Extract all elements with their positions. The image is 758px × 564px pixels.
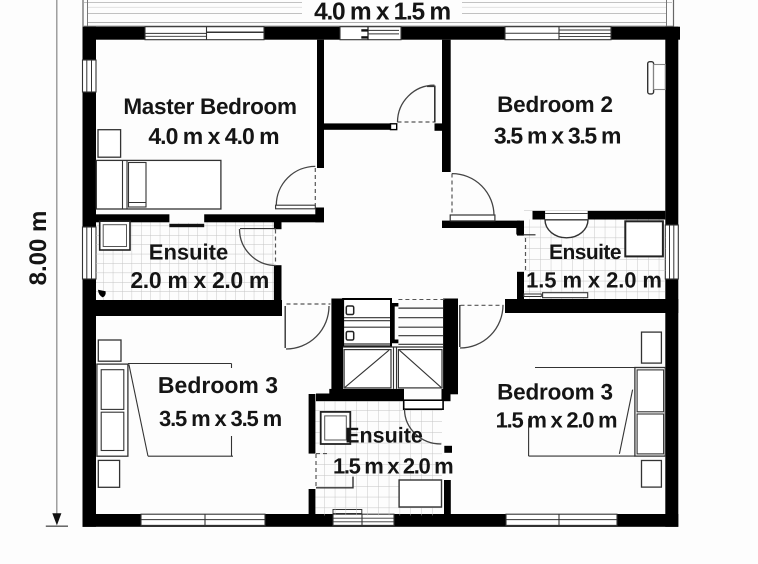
svg-text:3.5 m x 3.5 m: 3.5 m x 3.5 m [159,406,282,431]
svg-text:3.5 m x 3.5 m: 3.5 m x 3.5 m [494,123,621,149]
svg-text:4.0 m x 4.0 m: 4.0 m x 4.0 m [148,123,279,149]
svg-text:4.0 m x 1.5 m: 4.0 m x 1.5 m [314,0,450,26]
svg-text:Bedroom 2: Bedroom 2 [497,92,613,117]
svg-text:Bedroom 3: Bedroom 3 [158,372,278,398]
svg-text:8.00 m: 8.00 m [25,211,52,286]
svg-text:2.0 m x 2.0 m: 2.0 m x 2.0 m [130,267,269,293]
svg-text:Bedroom 3: Bedroom 3 [497,380,613,405]
svg-text:Ensuite: Ensuite [549,241,621,264]
svg-text:Ensuite: Ensuite [345,424,423,448]
svg-text:Master Bedroom: Master Bedroom [123,94,296,119]
svg-text:1.5 m x 2.0 m: 1.5 m x 2.0 m [496,408,617,433]
svg-text:1.5 m x 2.0 m: 1.5 m x 2.0 m [333,454,453,479]
svg-text:Ensuite: Ensuite [149,240,228,265]
svg-text:1.5 m x 2.0 m: 1.5 m x 2.0 m [526,268,662,293]
